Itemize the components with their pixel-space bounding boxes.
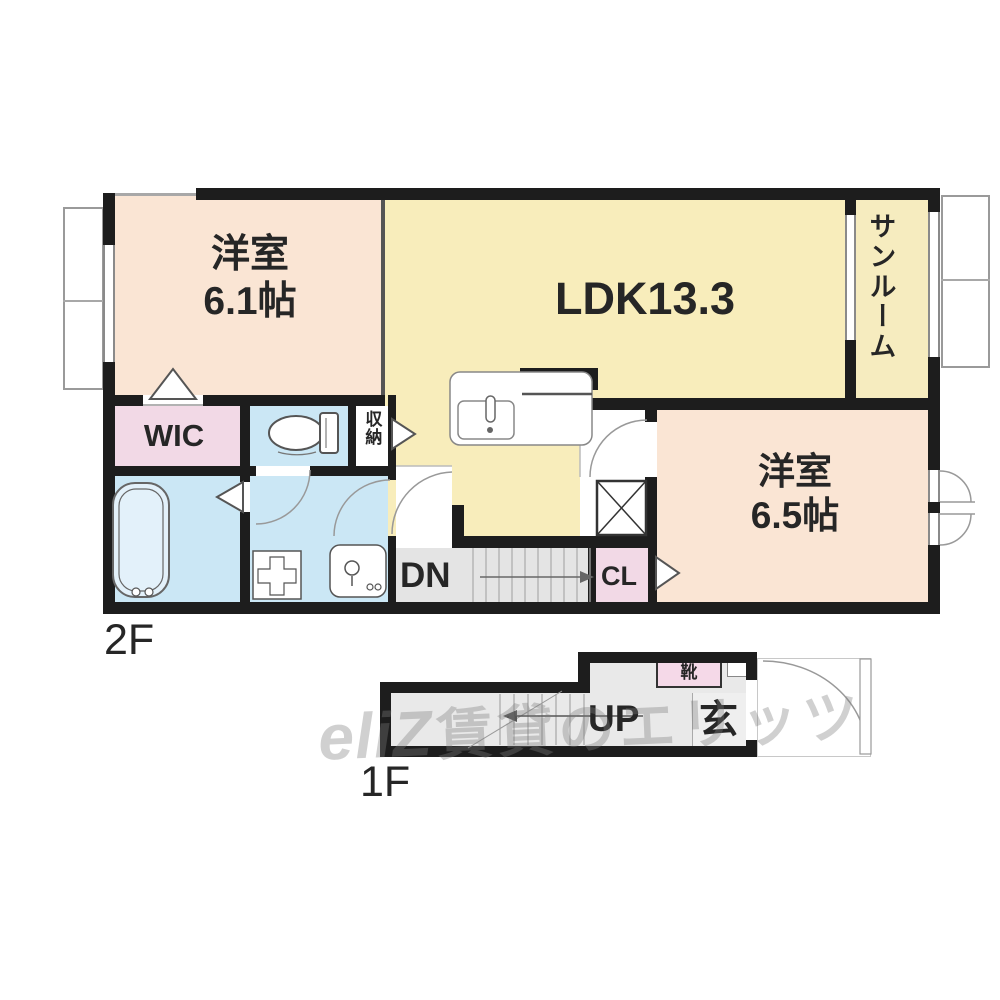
door-marker-western61 xyxy=(143,369,203,405)
western-61-size: 6.1帖 xyxy=(150,279,350,326)
label-ldk: LDK13.3 xyxy=(460,272,830,326)
door-arc-toilet xyxy=(256,470,310,524)
door-arc-hallway xyxy=(392,472,452,534)
stairs-down-icon xyxy=(473,548,590,602)
pipe-shaft-x-icon xyxy=(597,481,646,535)
western-65-size: 6.5帖 xyxy=(695,494,895,538)
western-61-name: 洋室 xyxy=(150,232,350,279)
watermark-text: 賃貸のエリッツ xyxy=(435,685,864,767)
door-arc-western65 xyxy=(590,420,647,477)
label-wic: WIC xyxy=(118,417,230,454)
toilet-icon xyxy=(269,413,338,455)
door-marker-closet xyxy=(656,557,679,589)
label-floor-2f: 2F xyxy=(104,615,154,667)
label-western-65: 洋室 6.5帖 xyxy=(695,450,895,539)
door-marker-storage xyxy=(392,419,415,449)
washing-machine-icon xyxy=(253,551,301,599)
casement-window-icons xyxy=(940,471,975,545)
label-western-61: 洋室 6.1帖 xyxy=(150,232,350,326)
label-cl: CL xyxy=(601,560,637,592)
floorplan-image: 靴 xyxy=(0,0,1000,1000)
washbasin-icon xyxy=(330,545,386,597)
door-marker-bath xyxy=(217,482,243,512)
label-storage: 収納 xyxy=(361,410,381,466)
label-sunroom: サンルーム xyxy=(864,212,896,397)
kitchen-sink-icon xyxy=(450,372,592,445)
watermark-logo: eliZ xyxy=(317,697,434,774)
western-65-name: 洋室 xyxy=(695,450,895,494)
label-dn: DN xyxy=(400,555,451,597)
bathtub-icon xyxy=(113,483,169,597)
door-arc-washroom xyxy=(334,480,390,536)
